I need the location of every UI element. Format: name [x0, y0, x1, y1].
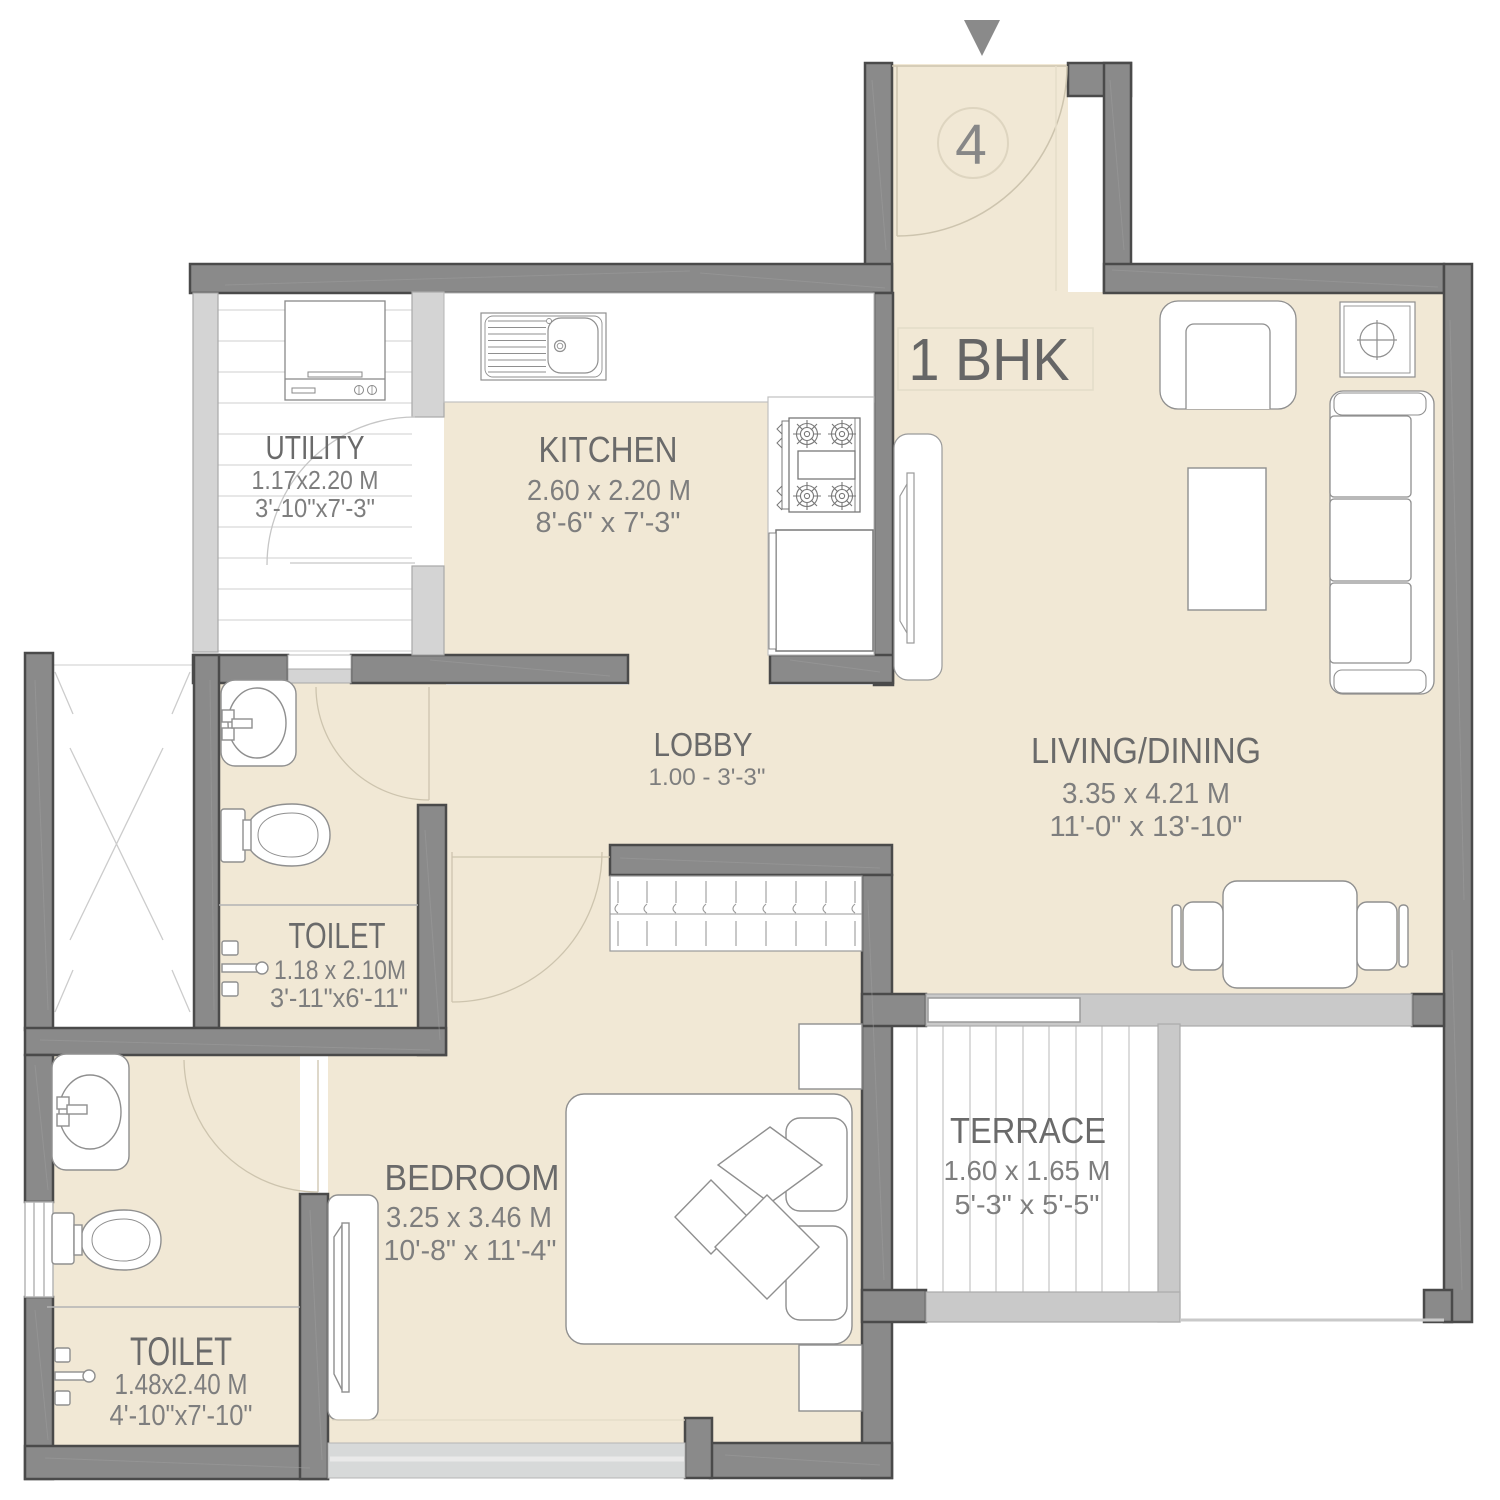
svg-text:2.60 x 2.20 M: 2.60 x 2.20 M — [527, 475, 691, 507]
svg-text:1.17x2.20 M: 1.17x2.20 M — [252, 465, 379, 495]
svg-text:1.48x2.40 M: 1.48x2.40 M — [115, 1369, 248, 1401]
svg-text:TOILET: TOILET — [289, 915, 386, 956]
svg-text:3.25 x 3.46 M: 3.25 x 3.46 M — [386, 1202, 552, 1234]
svg-text:3'-10"x7'-3": 3'-10"x7'-3" — [255, 493, 375, 523]
svg-text:11'-0" x 13'-10": 11'-0" x 13'-10" — [1050, 811, 1243, 843]
svg-text:BEDROOM: BEDROOM — [385, 1157, 560, 1198]
svg-text:10'-8" x 11'-4": 10'-8" x 11'-4" — [384, 1235, 557, 1267]
svg-text:4: 4 — [955, 113, 987, 177]
svg-text:8'-6" x 7'-3": 8'-6" x 7'-3" — [536, 507, 681, 539]
svg-text:1.00 - 3'-3": 1.00 - 3'-3" — [649, 764, 766, 791]
svg-text:LOBBY: LOBBY — [654, 726, 753, 763]
svg-text:LIVING/DINING: LIVING/DINING — [1031, 730, 1261, 771]
svg-text:1.18 x 2.10M: 1.18 x 2.10M — [274, 955, 406, 985]
svg-text:UTILITY: UTILITY — [266, 429, 365, 466]
svg-text:KITCHEN: KITCHEN — [539, 429, 678, 470]
svg-text:3'-11"x6'-11": 3'-11"x6'-11" — [270, 983, 408, 1013]
svg-text:1.60 x 1.65 M: 1.60 x 1.65 M — [944, 1155, 1111, 1186]
svg-text:TERRACE: TERRACE — [950, 1110, 1106, 1151]
svg-text:5'-3" x 5'-5": 5'-3" x 5'-5" — [955, 1189, 1100, 1220]
svg-text:3.35 x 4.21 M: 3.35 x 4.21 M — [1062, 778, 1230, 810]
svg-text:4'-10"x7'-10": 4'-10"x7'-10" — [110, 1400, 253, 1432]
svg-text:1 BHK: 1 BHK — [909, 327, 1070, 393]
svg-text:TOILET: TOILET — [130, 1330, 232, 1374]
